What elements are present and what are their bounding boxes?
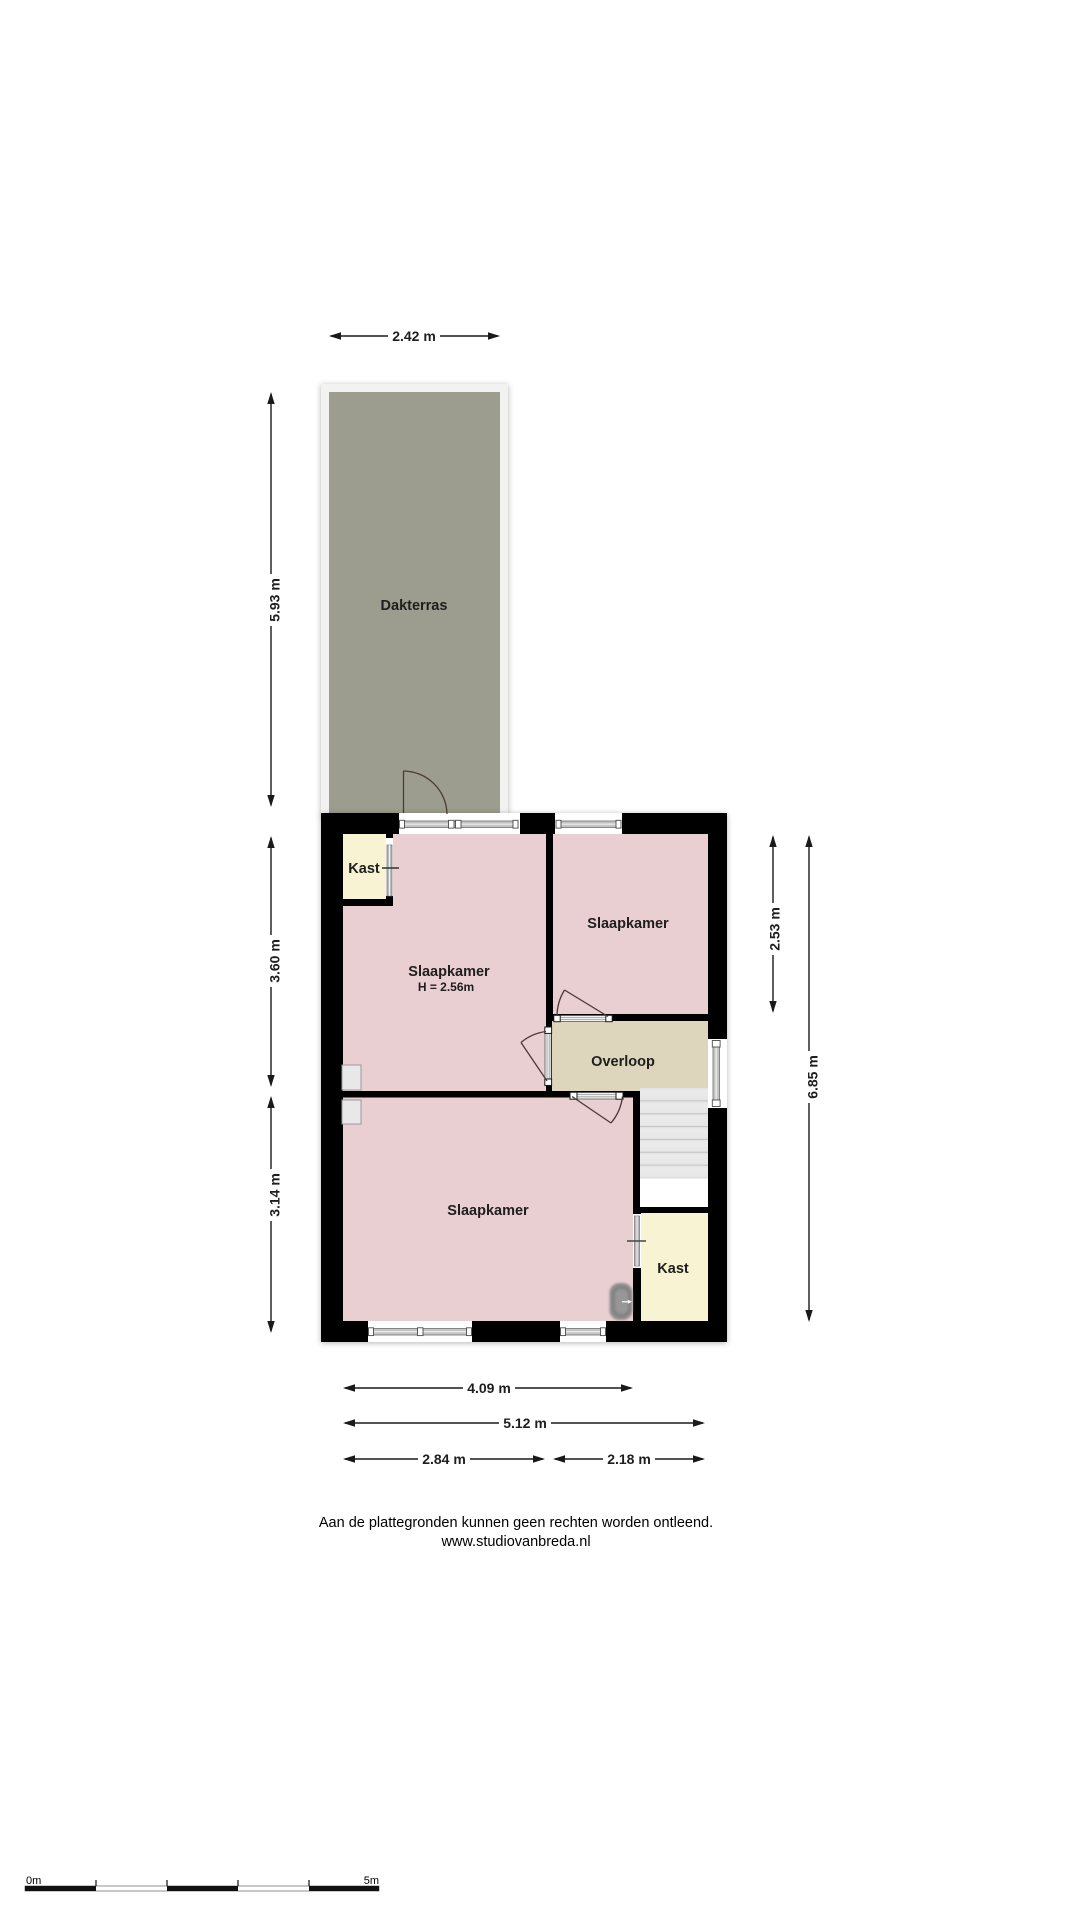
svg-text:Slaapkamer: Slaapkamer — [587, 916, 669, 932]
svg-text:2.84 m: 2.84 m — [422, 1451, 466, 1467]
svg-text:5.93 m: 5.93 m — [267, 578, 283, 622]
svg-text:Kast: Kast — [657, 1261, 689, 1277]
svg-text:3.60 m: 3.60 m — [267, 939, 283, 983]
svg-text:0m: 0m — [26, 1875, 41, 1887]
svg-text:6.85 m: 6.85 m — [805, 1055, 821, 1099]
svg-text:Dakterras: Dakterras — [381, 598, 448, 614]
svg-text:2.18 m: 2.18 m — [607, 1451, 651, 1467]
svg-text:2.53 m: 2.53 m — [767, 907, 783, 951]
svg-text:Overloop: Overloop — [591, 1054, 655, 1070]
svg-text:H = 2.56m: H = 2.56m — [418, 980, 474, 994]
svg-text:Slaapkamer: Slaapkamer — [447, 1203, 529, 1219]
svg-text:3.14 m: 3.14 m — [267, 1173, 283, 1217]
svg-text:Kast: Kast — [348, 861, 380, 877]
svg-text:4.09 m: 4.09 m — [467, 1380, 511, 1396]
svg-text:5m: 5m — [364, 1875, 379, 1887]
svg-text:Aan de plattegronden kunnen ge: Aan de plattegronden kunnen geen rechten… — [319, 1515, 713, 1531]
svg-text:5.12 m: 5.12 m — [503, 1415, 547, 1431]
svg-text:www.studiovanbreda.nl: www.studiovanbreda.nl — [440, 1534, 590, 1550]
svg-text:Slaapkamer: Slaapkamer — [408, 964, 490, 980]
svg-text:2.42 m: 2.42 m — [392, 328, 436, 344]
